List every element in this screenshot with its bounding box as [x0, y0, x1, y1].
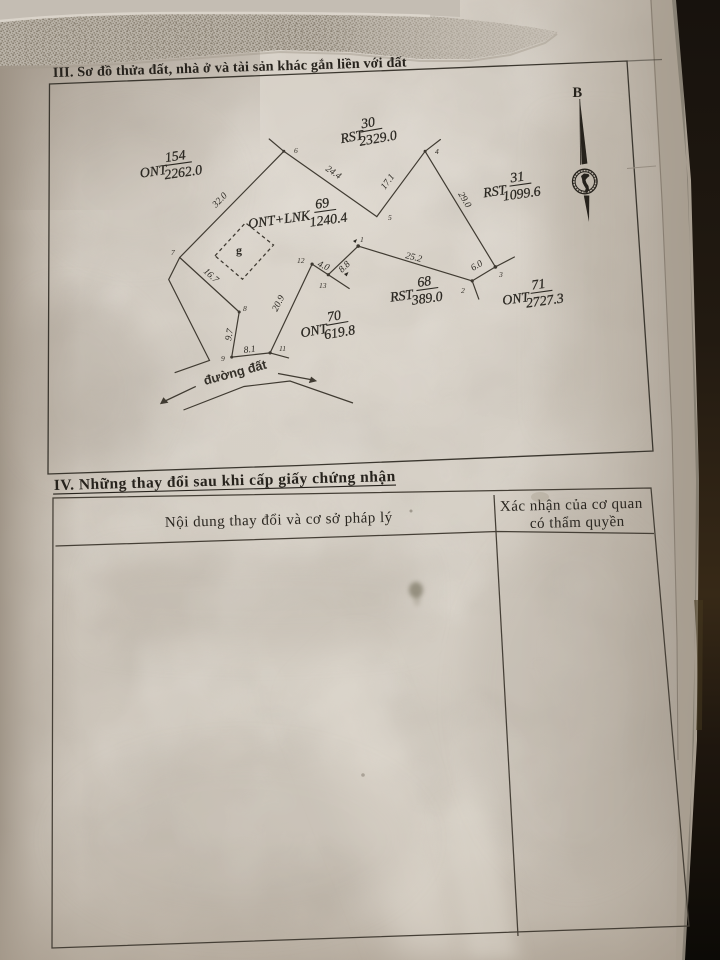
svg-text:2: 2: [461, 286, 465, 295]
svg-text:3: 3: [498, 270, 503, 279]
svg-text:13: 13: [319, 281, 327, 290]
svg-text:69: 69: [314, 195, 330, 212]
svg-text:5: 5: [388, 213, 392, 222]
svg-text:1: 1: [360, 235, 364, 244]
svg-text:4: 4: [435, 147, 439, 156]
svg-text:71: 71: [530, 276, 546, 293]
svg-text:8: 8: [243, 304, 247, 313]
svg-text:154: 154: [164, 147, 187, 165]
svg-text:g: g: [236, 243, 242, 257]
svg-text:70: 70: [326, 307, 342, 324]
svg-text:Xác nhận của cơ quan: Xác nhận của cơ quan: [500, 496, 643, 515]
svg-text:31: 31: [508, 169, 525, 186]
svg-text:9: 9: [221, 354, 225, 363]
svg-text:8.1: 8.1: [243, 345, 256, 356]
svg-text:30: 30: [359, 114, 376, 131]
svg-text:có thẩm quyền: có thẩm quyền: [530, 514, 625, 532]
svg-text:6: 6: [294, 146, 298, 155]
svg-text:12: 12: [297, 256, 305, 265]
svg-text:B: B: [573, 85, 583, 101]
svg-text:68: 68: [416, 273, 432, 290]
svg-text:11: 11: [279, 344, 286, 353]
